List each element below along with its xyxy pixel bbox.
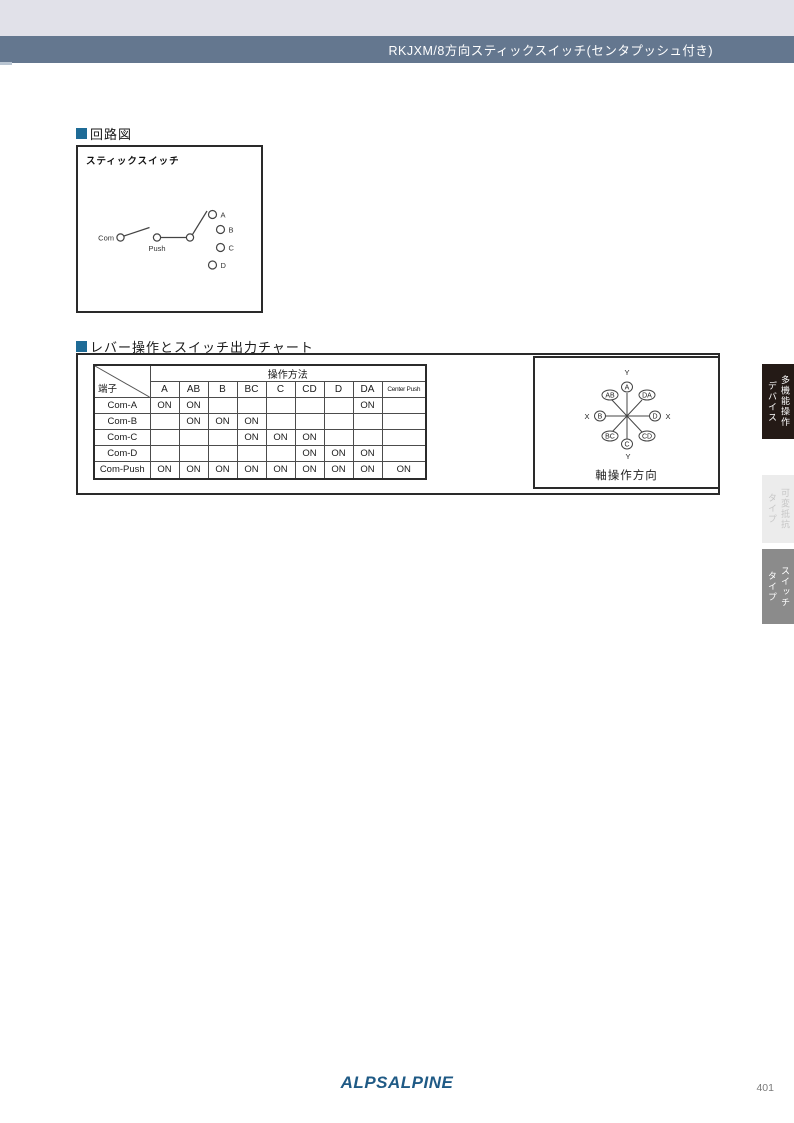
column-header-d: D [324, 382, 353, 398]
table-cell: ON [179, 414, 208, 430]
column-header-b: B [208, 382, 237, 398]
group-header: 操作方法 [150, 365, 426, 382]
table-cell [353, 414, 382, 430]
table-cell [237, 398, 266, 414]
table-cell [266, 414, 295, 430]
tab-label-line: デバイス [765, 375, 778, 428]
row-label: Com-A [94, 398, 150, 414]
table-cell [324, 414, 353, 430]
circuit-heading-label: 回路図 [90, 124, 132, 143]
table-cell: ON [266, 430, 295, 446]
table-cell: ON [150, 398, 179, 414]
table-cell [382, 446, 426, 462]
table-cell: ON [237, 462, 266, 479]
table-cell [179, 430, 208, 446]
top-bar [0, 0, 794, 36]
table-cell: ON [295, 446, 324, 462]
table-cell [150, 414, 179, 430]
table-row: Com-BONONON [94, 414, 426, 430]
title-bar: RKJXM/8方向スティックスイッチ(センタプッシュ付き) [0, 36, 794, 63]
alps-alpine-logo: ALPSALPINE [0, 1073, 794, 1093]
column-header-c: C [266, 382, 295, 398]
axis-direction-box: A AB DA B D BC CD C Y Y X X 軸操作方向 [533, 356, 720, 489]
axis-x-left-label: X [584, 412, 589, 421]
terminal-d-label: D [221, 261, 227, 270]
table-cell [295, 398, 324, 414]
table-cell [382, 398, 426, 414]
table-cell [150, 446, 179, 462]
table-cell [208, 430, 237, 446]
axis-dir-da: DA [642, 393, 652, 400]
axis-dir-ab: AB [605, 393, 615, 400]
row-label: Com-Push [94, 462, 150, 479]
column-header-bc: BC [237, 382, 266, 398]
table-cell [295, 414, 324, 430]
catalog-page: RKJXM/8方向スティックスイッチ(センタプッシュ付き) 回路図 スティックス… [0, 0, 794, 1123]
table-cell: ON [353, 462, 382, 479]
title-accent-mark [0, 62, 12, 65]
table-cell [382, 430, 426, 446]
circuit-diagram: Com Push A B C D [78, 147, 261, 311]
circuit-diagram-box: スティックスイッチ Com Push A B C D [76, 145, 263, 313]
axis-dir-a: A [625, 385, 630, 392]
terminal-b-label: B [229, 226, 234, 235]
table-cell [266, 446, 295, 462]
table-cell: ON [179, 462, 208, 479]
axis-dir-bc: BC [605, 434, 615, 441]
table-cell: ON [237, 430, 266, 446]
axis-dir-b: B [598, 414, 603, 421]
axis-dir-cd: CD [642, 434, 652, 441]
table-cell [353, 430, 382, 446]
table-cell: ON [266, 462, 295, 479]
axis-dir-d: D [652, 414, 657, 421]
push-terminal-label: Push [148, 244, 165, 253]
table-cell: ON [295, 462, 324, 479]
axis-dir-c: C [624, 442, 629, 449]
table-row: Com-CONONON [94, 430, 426, 446]
table-cell [382, 414, 426, 430]
corner-label: 端子 [98, 381, 117, 395]
output-chart-box: 端子操作方法AABBBCCCDDDACenter PushCom-AONONON… [76, 353, 720, 495]
table-corner-cell: 端子 [94, 365, 150, 398]
side-tab-variable-resistor-type: 可変抵抗 タイプ [762, 475, 794, 543]
row-label: Com-C [94, 430, 150, 446]
tab-label-line: 可変抵抗 [778, 488, 791, 530]
table-cell [150, 430, 179, 446]
table-cell [324, 430, 353, 446]
table-cell: ON [179, 398, 208, 414]
table-cell: ON [208, 462, 237, 479]
tab-label-line: 多機能操作 [778, 375, 791, 428]
column-header-da: DA [353, 382, 382, 398]
tab-label-line: タイプ [765, 488, 778, 530]
table-cell: ON [237, 414, 266, 430]
table-cell: ON [382, 462, 426, 479]
terminal-a-label: A [221, 211, 226, 220]
side-tab-multifunction-devices: 多機能操作 デバイス [762, 364, 794, 439]
axis-diagram-caption: 軸操作方向 [535, 467, 718, 483]
table-cell: ON [353, 398, 382, 414]
column-header-a: A [150, 382, 179, 398]
tab-label-line: スイッチ [778, 566, 791, 608]
table-cell [237, 446, 266, 462]
circuit-section-heading: 回路図 [76, 124, 132, 143]
column-header-cd: CD [295, 382, 324, 398]
table-cell: ON [295, 430, 324, 446]
table-cell: ON [150, 462, 179, 479]
table-row: Com-PushONONONONONONONONON [94, 462, 426, 479]
table-cell: ON [324, 462, 353, 479]
section-marker-icon [76, 341, 87, 352]
row-label: Com-D [94, 446, 150, 462]
axis-x-right-label: X [665, 412, 670, 421]
terminal-c-label: C [229, 244, 235, 253]
table-cell [324, 398, 353, 414]
section-marker-icon [76, 128, 87, 139]
table-cell: ON [324, 446, 353, 462]
table-cell [266, 398, 295, 414]
table-cell [179, 446, 208, 462]
column-header-center push: Center Push [382, 382, 426, 398]
page-number: 401 [756, 1082, 774, 1094]
table-cell: ON [353, 446, 382, 462]
column-header-ab: AB [179, 382, 208, 398]
com-terminal-label: Com [98, 234, 114, 243]
row-label: Com-B [94, 414, 150, 430]
axis-y-bottom-label: Y [625, 452, 630, 461]
output-table: 端子操作方法AABBBCCCDDDACenter PushCom-AONONON… [93, 364, 427, 480]
tab-label-line: タイプ [765, 566, 778, 608]
table-cell [208, 446, 237, 462]
table-cell: ON [208, 414, 237, 430]
side-tab-switch-type: スイッチ タイプ [762, 549, 794, 624]
table-cell [208, 398, 237, 414]
table-row: Com-AONONON [94, 398, 426, 414]
axis-y-top-label: Y [624, 368, 629, 377]
table-row: Com-DONONON [94, 446, 426, 462]
page-title: RKJXM/8方向スティックスイッチ(センタプッシュ付き) [389, 40, 714, 59]
